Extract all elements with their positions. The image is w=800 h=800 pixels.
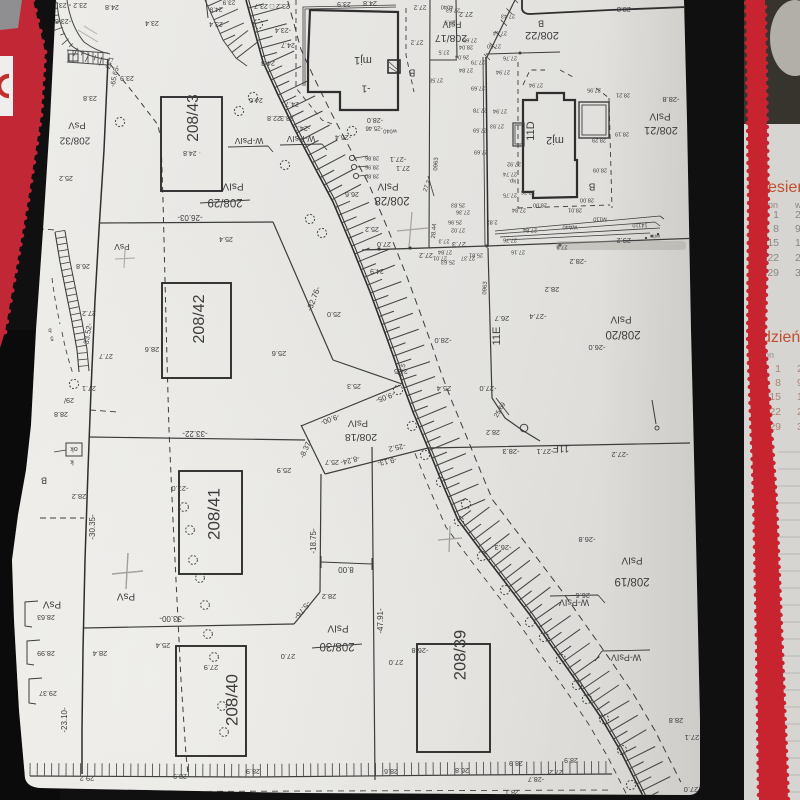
svg-text:-26.8: -26.8: [411, 646, 428, 655]
svg-text:25.83: 25.83: [451, 202, 465, 208]
svg-text:28.04: 28.04: [459, 44, 473, 50]
svg-text:30: 30: [795, 267, 800, 279]
svg-text:-27.2: -27.2: [611, 450, 628, 459]
svg-text:24.3: 24.3: [261, 59, 275, 67]
svg-text:-24.0: -24.0: [294, 124, 310, 132]
svg-text:22: 22: [767, 252, 779, 264]
svg-text:27.59: 27.59: [473, 127, 487, 133]
svg-text:27.84: 27.84: [512, 207, 526, 213]
svg-text:27.1: 27.1: [396, 164, 410, 172]
svg-text:-26.03-: -26.03-: [177, 213, 203, 222]
svg-text:B: B: [41, 476, 47, 486]
svg-text:24.7: 24.7: [285, 100, 299, 108]
svg-text:25.7: 25.7: [325, 458, 339, 466]
svg-text:28.9: 28.9: [564, 756, 578, 764]
svg-text:27.50: 27.50: [487, 43, 501, 49]
svg-text:WA40: WA40: [562, 224, 577, 230]
svg-text:25.4: 25.4: [437, 384, 452, 393]
svg-text:27.92: 27.92: [507, 161, 521, 167]
svg-text:23.8: 23.8: [83, 94, 97, 102]
svg-text:27.76: 27.76: [503, 237, 517, 243]
svg-text:28.29: 28.29: [592, 137, 606, 143]
svg-text:W-PsIV: W-PsIV: [234, 136, 263, 146]
svg-text:28.9: 28.9: [246, 767, 260, 775]
svg-text:27.2: 27.2: [419, 251, 433, 259]
svg-text:1: 1: [773, 209, 779, 221]
svg-text:27.95: 27.95: [587, 87, 601, 93]
svg-text:PsIV: PsIV: [347, 417, 368, 428]
svg-text:w040: w040: [383, 128, 397, 134]
svg-text:208/17: 208/17: [435, 32, 467, 44]
svg-text:14110: 14110: [632, 222, 647, 228]
svg-text:28.2: 28.2: [322, 592, 337, 601]
svg-text:8: 8: [773, 223, 779, 235]
svg-text:26.8: 26.8: [455, 766, 469, 774]
svg-text:2: 2: [795, 209, 800, 221]
svg-text:28.01: 28.01: [568, 207, 582, 213]
svg-text:-47.91-: -47.91-: [376, 608, 385, 634]
svg-text:25.96: 25.96: [448, 219, 462, 225]
svg-text:27.3: 27.3: [452, 240, 466, 248]
svg-text:27.5: 27.5: [445, 19, 456, 25]
svg-text:208/19: 208/19: [614, 575, 649, 587]
svg-text:27.02: 27.02: [451, 227, 465, 233]
svg-text:-28.8: -28.8: [617, 5, 633, 13]
svg-text:29.37: 29.37: [39, 689, 57, 697]
svg-text:-33.22-: -33.22-: [182, 429, 208, 438]
svg-text:27.54: 27.54: [493, 30, 507, 36]
svg-text:208/21: 208/21: [644, 124, 678, 136]
svg-text:-26.3: -26.3: [494, 543, 511, 552]
svg-text:PsIV: PsIV: [610, 313, 631, 324]
svg-text:23.4: 23.4: [145, 19, 159, 27]
svg-text:29/: 29/: [64, 396, 74, 404]
svg-text:-28.7: -28.7: [528, 775, 544, 783]
svg-text:208/20: 208/20: [605, 328, 640, 340]
svg-text:27.69: 27.69: [474, 149, 488, 155]
svg-text:27.94: 27.94: [529, 82, 543, 88]
svg-text:26.6: 26.6: [345, 190, 359, 198]
svg-text:25.0: 25.0: [327, 310, 341, 318]
svg-text:-27.1: -27.1: [390, 155, 406, 163]
svg-text:23: 23: [795, 252, 800, 264]
svg-text:15: 15: [769, 391, 781, 403]
svg-text:PsIV: PsIV: [377, 180, 398, 191]
svg-text:23.4: 23.4: [209, 20, 223, 28]
svg-text:27.63: 27.63: [446, 7, 460, 13]
svg-text:24.6: 24.6: [249, 96, 263, 104]
svg-text:27.1: 27.1: [685, 733, 700, 742]
svg-text:28.96: 28.96: [365, 164, 379, 170]
svg-text:25.9: 25.9: [277, 466, 292, 475]
svg-text:28.2: 28.2: [486, 428, 500, 436]
svg-text:208/42: 208/42: [191, 294, 208, 343]
svg-text:16: 16: [795, 237, 800, 249]
svg-text:27.84: 27.84: [438, 249, 452, 255]
svg-text:25.2: 25.2: [59, 174, 73, 182]
svg-text:-26.0: -26.0: [588, 343, 605, 352]
svg-text:29: 29: [767, 267, 779, 279]
svg-text:-27.4: -27.4: [529, 312, 546, 321]
svg-text:23.9: 23.9: [337, 0, 351, 8]
svg-text:27.94: 27.94: [496, 69, 510, 75]
svg-text:esień: esień: [768, 179, 800, 196]
svg-text:-28.0: -28.0: [367, 116, 383, 124]
svg-text:24.8: 24.8: [209, 5, 222, 12]
svg-text:-27.1: -27.1: [536, 447, 553, 456]
svg-text:-23.8: -23.8: [55, 17, 71, 25]
svg-text:-18.75-: -18.75-: [309, 528, 318, 554]
svg-text:kp.: kp.: [508, 178, 516, 184]
svg-text:208/28: 208/28: [374, 194, 409, 206]
svg-text:-26.6: -26.6: [575, 591, 592, 600]
svg-text:26.7: 26.7: [495, 314, 510, 323]
svg-text:2.82: 2.82: [487, 219, 498, 225]
svg-text:23.2 □ 23.7: 23.2 □ 23.7: [254, 2, 290, 10]
svg-text:25.63: 25.63: [441, 259, 455, 265]
svg-text:27.0: 27.0: [684, 785, 699, 794]
svg-text:-23.4: -23.4: [275, 26, 291, 34]
svg-text:27.1: 27.1: [82, 384, 96, 392]
svg-text:PsV: PsV: [114, 242, 130, 252]
svg-text:28.99: 28.99: [37, 649, 55, 657]
svg-text:-28.0: -28.0: [434, 336, 451, 345]
svg-text:1: 1: [775, 363, 781, 375]
svg-text:W-PsIV: W-PsIV: [286, 134, 315, 144]
svg-text:ok: ok: [70, 445, 78, 452]
svg-text:-27.0: -27.0: [171, 484, 188, 493]
svg-text:28.8: 28.8: [669, 716, 684, 725]
svg-text:26.8: 26.8: [76, 262, 90, 270]
svg-text:11F: 11F: [553, 442, 570, 453]
svg-text:PsV: PsV: [117, 590, 136, 601]
svg-text:28.86: 28.86: [365, 155, 379, 161]
svg-text:208/43: 208/43: [185, 94, 202, 141]
svg-text:27.0: 27.0: [281, 652, 296, 661]
svg-text:mj2: mj2: [546, 134, 564, 146]
svg-text:B: B: [538, 19, 544, 29]
svg-text:0963: 0963: [433, 157, 440, 171]
svg-text:PsIV: PsIV: [649, 110, 670, 121]
svg-text:k: k: [70, 458, 74, 465]
svg-text:25.6: 25.6: [272, 349, 287, 358]
svg-text:27.79: 27.79: [471, 59, 485, 65]
svg-text:-26.8: -26.8: [578, 535, 595, 544]
svg-text:27.3: 27.3: [439, 238, 450, 244]
svg-text:28.9: 28.9: [509, 759, 523, 767]
svg-text:208/18: 208/18: [345, 431, 377, 443]
svg-text:28.00: 28.00: [580, 197, 594, 203]
svg-text:PsV: PsV: [43, 598, 62, 609]
svg-text:9: 9: [795, 223, 800, 235]
svg-text:-27.0: -27.0: [479, 384, 496, 393]
svg-text:25.4: 25.4: [156, 641, 171, 650]
svg-text:208/41: 208/41: [204, 488, 223, 540]
svg-text:27.63: 27.63: [463, 37, 477, 43]
svg-text:27.8: 27.8: [557, 244, 568, 250]
svg-text:-25.4: -25.4: [335, 133, 351, 141]
svg-text:27.84: 27.84: [459, 67, 473, 73]
svg-text:27.58: 27.58: [429, 77, 443, 83]
svg-text:208/39: 208/39: [451, 630, 469, 680]
svg-text:28.6: 28.6: [145, 345, 160, 354]
svg-text:28.2: 28.2: [72, 492, 87, 501]
svg-text:27.36: 27.36: [456, 209, 470, 215]
svg-text:-1: -1: [361, 82, 370, 93]
svg-text:28.6: 28.6: [384, 767, 398, 775]
svg-text:-28.8: -28.8: [662, 95, 679, 104]
svg-text:24.8: 24.8: [105, 3, 119, 11]
svg-text:23.2 ▫ 23.7: 23.2 ▫ 23.7: [53, 1, 87, 9]
svg-text:-23.10-: -23.10-: [60, 707, 69, 733]
svg-text:27.78: 27.78: [473, 107, 487, 113]
svg-text:W-PsIV: W-PsIV: [611, 653, 641, 663]
svg-text:26.04: 26.04: [455, 54, 469, 60]
svg-text:27.84: 27.84: [523, 227, 537, 233]
svg-text:22.8: 22.8: [267, 114, 281, 122]
svg-text:28.3: 28.3: [280, 114, 294, 122]
svg-text:-28.2: -28.2: [569, 257, 586, 266]
svg-text:· 24.8: · 24.8: [183, 149, 201, 156]
svg-text:27.2: 27.2: [413, 3, 426, 10]
svg-text:27.0: 27.0: [389, 658, 404, 667]
svg-text:11E: 11E: [491, 327, 503, 346]
svg-text:PsIV: PsIV: [327, 622, 348, 633]
svg-text:-29.2: -29.2: [616, 236, 633, 245]
svg-text:8: 8: [775, 377, 781, 389]
svg-text:27.43: 27.43: [501, 13, 515, 19]
svg-text:27.0: 27.0: [377, 240, 391, 248]
svg-text:dzień: dzień: [762, 329, 800, 346]
svg-text:28.19: 28.19: [615, 131, 629, 137]
svg-text:-33.00-: -33.00-: [159, 614, 185, 623]
svg-text:27.2: 27.2: [459, 10, 473, 18]
svg-text:23.9: 23.9: [120, 74, 134, 82]
svg-text:23.9: 23.9: [222, 0, 235, 5]
svg-text:-28.3: -28.3: [502, 447, 519, 456]
svg-text:25.81: 25.81: [469, 252, 483, 258]
svg-text:208/32: 208/32: [59, 134, 90, 145]
svg-text:25.4: 25.4: [219, 235, 233, 243]
svg-text:27.9: 27.9: [204, 663, 219, 672]
svg-text:PsIV: PsIV: [222, 180, 243, 191]
svg-text:B: B: [588, 180, 595, 191]
svg-text:PsIV: PsIV: [621, 554, 642, 565]
svg-text:27.74: 27.74: [503, 171, 517, 177]
svg-text:27.5: 27.5: [439, 49, 450, 55]
svg-text:27.93: 27.93: [490, 123, 504, 129]
svg-text:8.00: 8.00: [338, 565, 354, 574]
svg-text:-25.46: -25.46: [365, 124, 383, 130]
svg-text:27.76: 27.76: [521, 189, 535, 195]
svg-text:27.76: 27.76: [503, 55, 517, 61]
svg-text:28.4: 28.4: [93, 649, 108, 658]
svg-text:27.2: 27.2: [410, 38, 423, 45]
svg-text:208/22: 208/22: [525, 29, 559, 41]
svg-text:27.2: 27.2: [549, 768, 563, 776]
svg-text:208/40: 208/40: [222, 674, 241, 726]
svg-text:27.2: 27.2: [82, 309, 96, 317]
svg-text:28.21: 28.21: [616, 92, 630, 98]
svg-text:27.75: 27.75: [503, 192, 517, 198]
svg-text:24.9: 24.9: [370, 267, 384, 275]
svg-text:24.7: 24.7: [281, 41, 295, 49]
svg-text:28.00: 28.00: [533, 202, 547, 208]
svg-text:28.9: 28.9: [173, 772, 187, 780]
svg-text:PsV: PsV: [68, 119, 86, 130]
svg-text:11D: 11D: [525, 121, 537, 140]
svg-text:28.63: 28.63: [37, 613, 55, 621]
svg-text:0963: 0963: [482, 281, 489, 295]
svg-text:mj1: mj1: [354, 54, 372, 66]
svg-text:wt: wt: [794, 200, 800, 210]
svg-text:27.7: 27.7: [99, 352, 113, 360]
svg-text:25.3: 25.3: [347, 382, 361, 390]
svg-text:28.2: 28.2: [545, 285, 560, 294]
svg-text:-30.35-: -30.35-: [88, 514, 97, 540]
svg-text:w/m: w/m: [650, 233, 662, 239]
svg-text:28.80: 28.80: [365, 173, 379, 179]
svg-text:25.2: 25.2: [365, 225, 379, 233]
svg-text:24.8: 24.8: [363, 0, 377, 7]
svg-text:29.2: 29.2: [80, 774, 95, 783]
svg-text:28.09: 28.09: [593, 167, 607, 173]
svg-text:27.69: 27.69: [471, 85, 485, 91]
svg-text:27.16: 27.16: [511, 249, 525, 255]
svg-text:M110: M110: [593, 216, 607, 222]
svg-text:27.94: 27.94: [493, 108, 507, 114]
svg-text:28.8: 28.8: [54, 410, 68, 418]
